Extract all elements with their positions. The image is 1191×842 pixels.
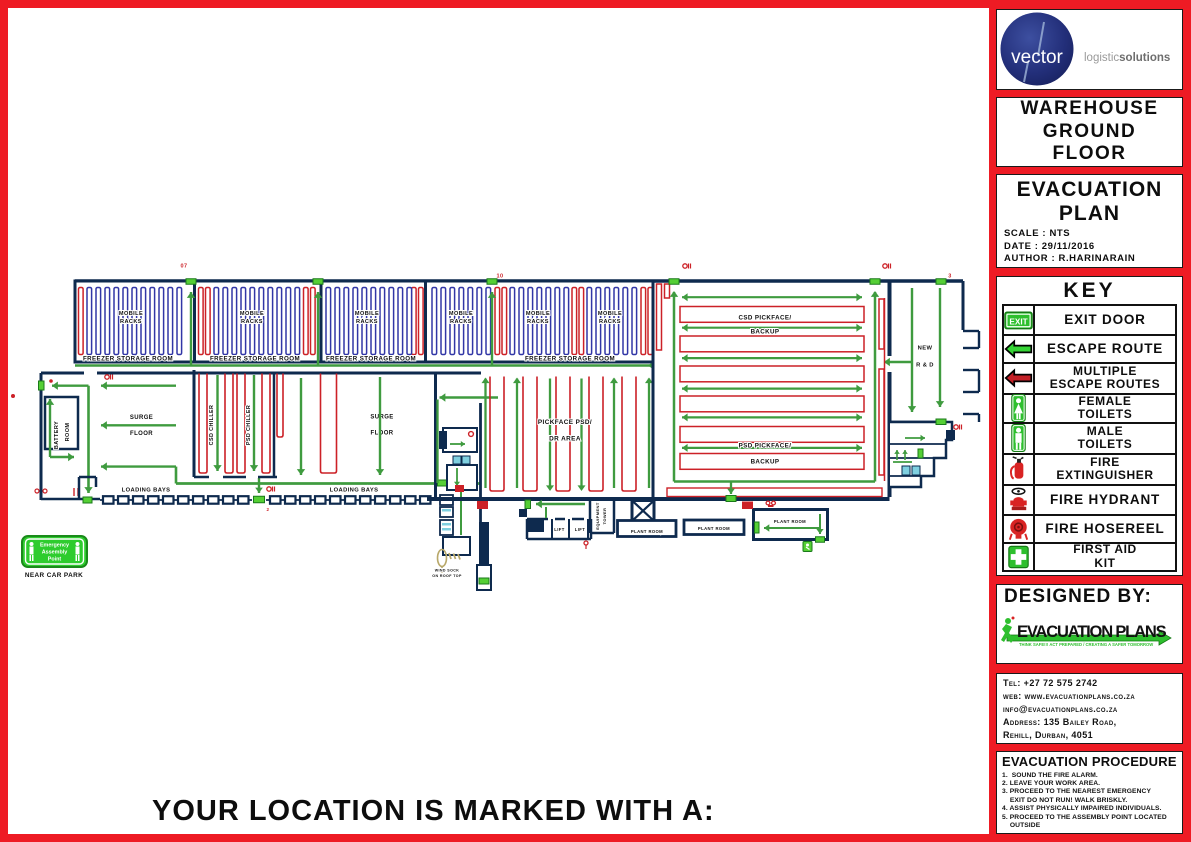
svg-text:RACKS: RACKS — [450, 319, 472, 325]
svg-text:EQUIPMENT: EQUIPMENT — [595, 502, 600, 530]
svg-text:PSD PICKFACE/: PSD PICKFACE/ — [739, 443, 792, 450]
svg-text:LIFT: LIFT — [575, 527, 585, 532]
svg-text:WIND SOCK: WIND SOCK — [435, 569, 460, 573]
svg-text:Point: Point — [48, 557, 62, 563]
svg-text:SURGE: SURGE — [130, 415, 153, 421]
svg-text:BACKUP: BACKUP — [751, 329, 780, 336]
svg-text:MOBILE: MOBILE — [119, 311, 143, 317]
svg-text:PICKFACE PSD/: PICKFACE PSD/ — [538, 419, 592, 426]
svg-text:Assembly: Assembly — [42, 550, 67, 556]
svg-text:RACKS: RACKS — [356, 319, 378, 325]
svg-text:NEW: NEW — [918, 346, 933, 352]
svg-text:MOBILE: MOBILE — [240, 311, 264, 317]
svg-text:NEAR CAR PARK: NEAR CAR PARK — [25, 572, 83, 579]
svg-text:ON ROOF TOP: ON ROOF TOP — [432, 574, 462, 578]
svg-text:TOWER: TOWER — [602, 508, 607, 525]
svg-text:ROOM: ROOM — [65, 423, 71, 442]
svg-text:MOBILE: MOBILE — [526, 311, 550, 317]
svg-text:3: 3 — [948, 274, 951, 280]
svg-text:MOBILE: MOBILE — [355, 311, 379, 317]
svg-text:RACKS: RACKS — [120, 319, 142, 325]
svg-text:PLANT ROOM: PLANT ROOM — [631, 529, 663, 534]
svg-text:RACKS: RACKS — [241, 319, 263, 325]
svg-text:PSD CHILLER: PSD CHILLER — [246, 405, 252, 445]
svg-text:CSD PICKFACE/: CSD PICKFACE/ — [739, 315, 792, 322]
svg-text:FREEZER STORAGE ROOM: FREEZER STORAGE ROOM — [525, 356, 615, 363]
svg-text:MOBILE: MOBILE — [598, 311, 622, 317]
svg-text:RACKS: RACKS — [599, 319, 621, 325]
svg-text:EXIT: EXIT — [1009, 317, 1027, 326]
svg-text:Emergency: Emergency — [40, 543, 69, 549]
svg-text:LIFT: LIFT — [554, 527, 564, 532]
svg-text:logisticsolutions: logisticsolutions — [1084, 52, 1170, 64]
svg-text:SURGE: SURGE — [370, 415, 393, 421]
svg-text:07: 07 — [181, 264, 188, 270]
svg-text:10: 10 — [497, 274, 504, 280]
svg-text:CSD CHILLER: CSD CHILLER — [209, 405, 215, 446]
svg-text:FLOOR: FLOOR — [371, 431, 394, 437]
svg-text:FREEZER STORAGE ROOM: FREEZER STORAGE ROOM — [83, 356, 173, 363]
svg-text:DR AREA: DR AREA — [549, 436, 581, 443]
svg-text:PLANT ROOM: PLANT ROOM — [698, 526, 730, 531]
svg-text:FLOOR: FLOOR — [130, 431, 153, 437]
svg-text:BACKUP: BACKUP — [751, 459, 780, 466]
svg-text:LOADING BAYS: LOADING BAYS — [122, 488, 171, 494]
svg-text:vector: vector — [1011, 47, 1063, 68]
svg-text:R & D: R & D — [916, 363, 934, 369]
svg-text:BATTERY: BATTERY — [54, 421, 60, 449]
svg-text:PLANT ROOM: PLANT ROOM — [774, 519, 806, 524]
svg-text:FREEZER STORAGE ROOM: FREEZER STORAGE ROOM — [326, 356, 416, 363]
svg-text:MOBILE: MOBILE — [449, 311, 473, 317]
svg-text:THINK SAFE!!! ACT PREPARED / C: THINK SAFE!!! ACT PREPARED / CREATING A … — [1019, 642, 1153, 647]
svg-text:FREEZER STORAGE ROOM: FREEZER STORAGE ROOM — [210, 356, 300, 363]
svg-text:EVACUATION PLANS: EVACUATION PLANS — [1017, 623, 1167, 641]
svg-text:LOADING BAYS: LOADING BAYS — [330, 488, 379, 494]
svg-text:2: 2 — [267, 507, 270, 512]
svg-text:RACKS: RACKS — [527, 319, 549, 325]
